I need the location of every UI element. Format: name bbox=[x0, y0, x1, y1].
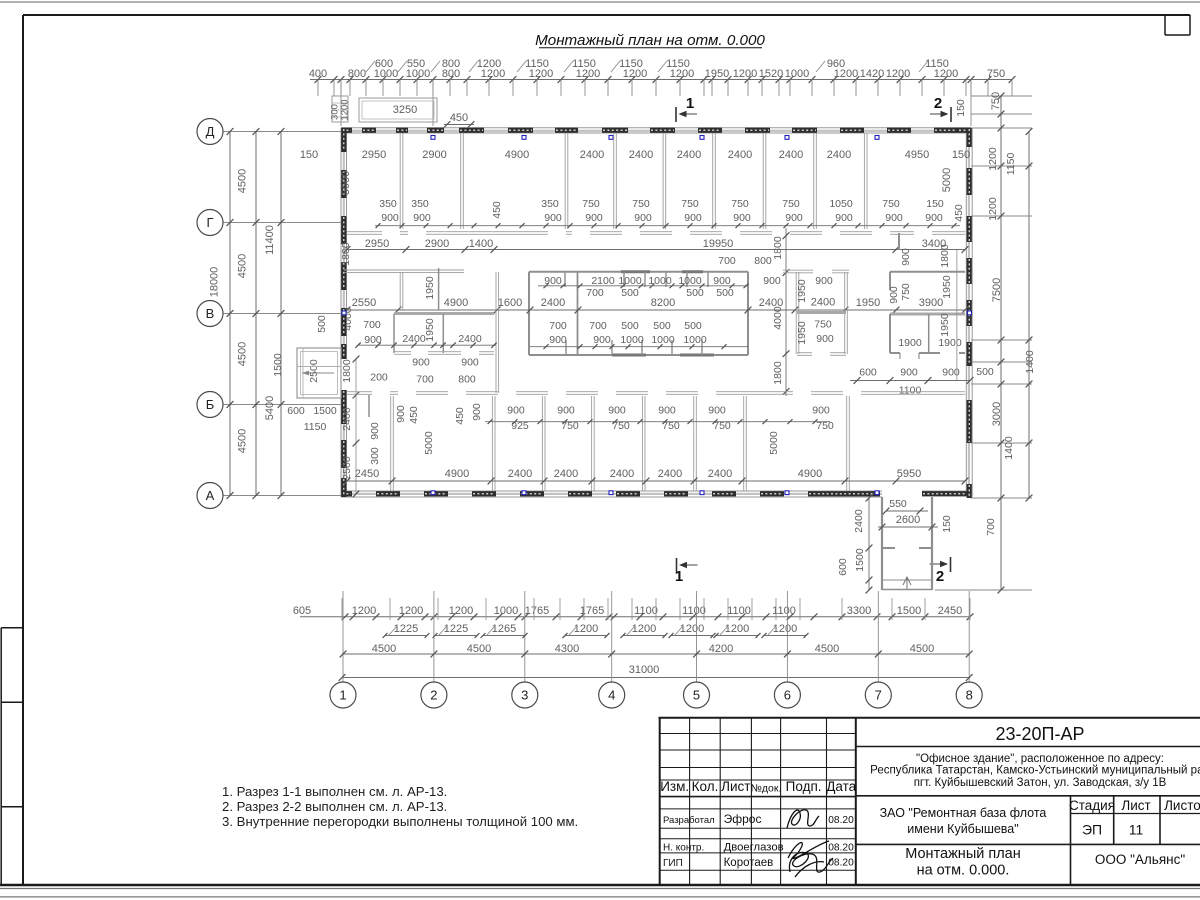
svg-text:150: 150 bbox=[941, 515, 953, 533]
svg-text:№док.: №док. bbox=[751, 783, 782, 795]
svg-text:1950: 1950 bbox=[941, 275, 953, 299]
svg-text:6: 6 bbox=[784, 688, 791, 703]
svg-text:2400: 2400 bbox=[658, 468, 682, 480]
svg-text:1800: 1800 bbox=[939, 244, 951, 268]
svg-text:4500: 4500 bbox=[236, 342, 248, 366]
svg-text:2: 2 bbox=[430, 688, 437, 703]
svg-text:5000: 5000 bbox=[423, 431, 435, 455]
svg-text:400: 400 bbox=[309, 68, 327, 80]
svg-text:4900: 4900 bbox=[444, 297, 468, 309]
svg-text:350: 350 bbox=[541, 198, 559, 210]
svg-text:2400: 2400 bbox=[629, 149, 653, 161]
svg-text:1200: 1200 bbox=[576, 68, 600, 80]
svg-text:1: 1 bbox=[675, 568, 683, 585]
svg-text:Дата: Дата bbox=[826, 779, 856, 794]
svg-text:800: 800 bbox=[754, 255, 772, 267]
svg-text:500: 500 bbox=[653, 320, 671, 332]
svg-text:5400: 5400 bbox=[264, 396, 276, 420]
svg-text:1150: 1150 bbox=[304, 421, 327, 433]
svg-text:600: 600 bbox=[837, 558, 849, 576]
svg-text:31000: 31000 bbox=[629, 664, 660, 676]
svg-text:4900: 4900 bbox=[505, 149, 529, 161]
svg-text:5000: 5000 bbox=[340, 171, 352, 195]
svg-text:7500: 7500 bbox=[991, 278, 1003, 302]
svg-text:2400: 2400 bbox=[508, 468, 532, 480]
svg-text:Лист: Лист bbox=[721, 779, 750, 794]
svg-text:1200: 1200 bbox=[449, 605, 473, 617]
svg-text:1265: 1265 bbox=[492, 623, 516, 635]
svg-text:1. Разрез 1-1 выполнен см. л.: 1. Разрез 1-1 выполнен см. л. АР-13. bbox=[222, 784, 447, 799]
svg-text:150: 150 bbox=[926, 198, 944, 210]
svg-text:750: 750 bbox=[900, 283, 912, 301]
svg-text:700: 700 bbox=[363, 319, 381, 331]
svg-text:1800: 1800 bbox=[340, 242, 352, 266]
svg-text:Эфрос: Эфрос bbox=[724, 812, 762, 826]
svg-text:пгт. Куйбышевский Затон, ул. З: пгт. Куйбышевский Затон, ул. Заводская, … bbox=[914, 777, 1167, 789]
svg-text:5: 5 bbox=[693, 688, 700, 703]
svg-text:1000: 1000 bbox=[683, 334, 707, 346]
svg-text:1100: 1100 bbox=[727, 605, 751, 617]
svg-text:ООО "Альянс": ООО "Альянс" bbox=[1095, 852, 1185, 867]
svg-text:900: 900 bbox=[413, 212, 431, 224]
svg-text:3000: 3000 bbox=[991, 402, 1003, 426]
svg-text:1765: 1765 bbox=[525, 605, 549, 617]
svg-text:900: 900 bbox=[557, 404, 575, 416]
svg-text:1950: 1950 bbox=[796, 321, 808, 345]
svg-text:4950: 4950 bbox=[905, 149, 929, 161]
svg-text:1400: 1400 bbox=[1024, 350, 1036, 374]
svg-text:900: 900 bbox=[544, 275, 562, 287]
svg-text:08.20: 08.20 bbox=[828, 843, 854, 854]
svg-text:900: 900 bbox=[885, 212, 903, 224]
svg-text:4900: 4900 bbox=[798, 468, 822, 480]
svg-text:750: 750 bbox=[882, 198, 900, 210]
svg-text:750: 750 bbox=[632, 198, 650, 210]
svg-text:900: 900 bbox=[395, 405, 407, 423]
svg-text:Подп.: Подп. bbox=[786, 779, 822, 794]
svg-text:900: 900 bbox=[608, 404, 626, 416]
svg-text:750: 750 bbox=[582, 198, 600, 210]
svg-text:450: 450 bbox=[953, 204, 965, 222]
svg-text:1200: 1200 bbox=[623, 68, 647, 80]
svg-text:4500: 4500 bbox=[467, 643, 491, 655]
svg-text:750: 750 bbox=[681, 198, 699, 210]
svg-text:4500: 4500 bbox=[236, 169, 248, 193]
svg-text:1200: 1200 bbox=[987, 197, 999, 221]
svg-text:1200: 1200 bbox=[725, 623, 749, 635]
svg-text:900: 900 bbox=[835, 212, 853, 224]
svg-text:500: 500 bbox=[684, 320, 702, 332]
svg-text:900: 900 bbox=[900, 367, 918, 379]
svg-text:"Офисное здание", расположенно: "Офисное здание", расположенное по адрес… bbox=[916, 753, 1164, 765]
svg-text:Республика Татарстан, Камско-У: Республика Татарстан, Камско-Устьинский … bbox=[870, 765, 1200, 777]
svg-text:1200: 1200 bbox=[340, 99, 351, 120]
svg-text:2400: 2400 bbox=[708, 468, 732, 480]
svg-text:700: 700 bbox=[985, 518, 997, 536]
svg-text:900: 900 bbox=[593, 334, 611, 346]
svg-text:В: В bbox=[206, 306, 215, 321]
svg-text:1800: 1800 bbox=[772, 361, 784, 385]
svg-text:1950: 1950 bbox=[424, 318, 436, 342]
svg-text:605: 605 bbox=[293, 605, 311, 617]
svg-text:1500: 1500 bbox=[272, 353, 284, 377]
svg-text:2400: 2400 bbox=[811, 297, 835, 309]
svg-text:4: 4 bbox=[608, 688, 615, 703]
svg-text:900: 900 bbox=[815, 275, 833, 287]
svg-text:4500: 4500 bbox=[236, 254, 248, 278]
svg-text:5000: 5000 bbox=[941, 168, 953, 192]
svg-text:2400: 2400 bbox=[402, 333, 426, 345]
svg-text:1000: 1000 bbox=[494, 605, 518, 617]
svg-text:1000: 1000 bbox=[620, 334, 644, 346]
svg-text:1950: 1950 bbox=[796, 279, 808, 303]
svg-text:500: 500 bbox=[621, 287, 639, 299]
svg-text:2400: 2400 bbox=[728, 149, 752, 161]
svg-text:700: 700 bbox=[416, 374, 434, 386]
svg-text:900: 900 bbox=[812, 404, 830, 416]
svg-text:Разработал: Разработал bbox=[663, 815, 715, 826]
svg-text:900: 900 bbox=[507, 404, 525, 416]
svg-text:2. Разрез 2-2 выполнен см. л.: 2. Разрез 2-2 выполнен см. л. АР-13. bbox=[222, 799, 447, 814]
svg-text:700: 700 bbox=[586, 287, 604, 299]
svg-text:ЗАО "Ремонтная база флота: ЗАО "Ремонтная база флота bbox=[880, 806, 1047, 820]
svg-text:900: 900 bbox=[713, 275, 731, 287]
svg-text:150: 150 bbox=[300, 149, 318, 161]
svg-text:900: 900 bbox=[369, 422, 381, 440]
svg-text:900: 900 bbox=[634, 212, 652, 224]
svg-text:2450: 2450 bbox=[938, 605, 962, 617]
svg-text:2900: 2900 bbox=[425, 238, 449, 250]
svg-text:Монтажный план на отм. 0.000: Монтажный план на отм. 0.000 bbox=[535, 32, 765, 49]
svg-text:2450: 2450 bbox=[355, 468, 379, 480]
svg-text:1200: 1200 bbox=[733, 68, 757, 80]
svg-text:Монтажный план: Монтажный план bbox=[905, 846, 1021, 862]
svg-text:1200: 1200 bbox=[773, 623, 797, 635]
svg-text:150: 150 bbox=[952, 149, 970, 161]
svg-text:Д: Д bbox=[206, 124, 215, 139]
svg-text:2950: 2950 bbox=[365, 238, 389, 250]
svg-text:3250: 3250 bbox=[393, 104, 417, 116]
svg-text:Изм.: Изм. bbox=[660, 779, 689, 794]
svg-text:2400: 2400 bbox=[610, 468, 634, 480]
svg-text:1200: 1200 bbox=[886, 68, 910, 80]
svg-text:2400: 2400 bbox=[554, 468, 578, 480]
svg-text:1: 1 bbox=[339, 688, 346, 703]
svg-text:Г: Г bbox=[206, 215, 213, 230]
svg-text:900: 900 bbox=[925, 212, 943, 224]
svg-text:2100: 2100 bbox=[591, 275, 615, 287]
svg-text:1800: 1800 bbox=[772, 236, 784, 260]
svg-text:500: 500 bbox=[621, 320, 639, 332]
svg-text:2400: 2400 bbox=[827, 149, 851, 161]
svg-text:4500: 4500 bbox=[372, 643, 396, 655]
svg-text:2: 2 bbox=[936, 568, 944, 585]
svg-text:Лист: Лист bbox=[1121, 798, 1150, 813]
svg-text:1600: 1600 bbox=[498, 297, 522, 309]
svg-text:А: А bbox=[206, 488, 215, 503]
svg-text:900: 900 bbox=[412, 357, 430, 369]
svg-text:900: 900 bbox=[816, 333, 834, 345]
svg-text:350: 350 bbox=[411, 198, 429, 210]
svg-text:1950: 1950 bbox=[705, 68, 729, 80]
svg-text:900: 900 bbox=[544, 212, 562, 224]
svg-text:2400: 2400 bbox=[541, 297, 565, 309]
svg-text:1500: 1500 bbox=[313, 405, 337, 417]
svg-text:1950: 1950 bbox=[424, 276, 436, 300]
svg-text:1000: 1000 bbox=[374, 68, 398, 80]
svg-text:1225: 1225 bbox=[444, 623, 468, 635]
svg-text:1950: 1950 bbox=[856, 297, 880, 309]
svg-text:750: 750 bbox=[990, 92, 1002, 110]
svg-text:23-20П-АР: 23-20П-АР bbox=[996, 724, 1085, 744]
svg-text:5000: 5000 bbox=[768, 431, 780, 455]
svg-text:700: 700 bbox=[589, 320, 607, 332]
svg-text:4300: 4300 bbox=[555, 643, 579, 655]
svg-text:11400: 11400 bbox=[264, 225, 276, 255]
svg-text:1500: 1500 bbox=[854, 548, 866, 572]
svg-text:3. Внутренние перегородки выпо: 3. Внутренние перегородки выполнены толщ… bbox=[222, 814, 578, 829]
svg-text:200: 200 bbox=[370, 372, 388, 384]
svg-text:800: 800 bbox=[458, 374, 476, 386]
svg-text:750: 750 bbox=[782, 198, 800, 210]
svg-text:900: 900 bbox=[461, 357, 479, 369]
svg-text:2400: 2400 bbox=[341, 407, 353, 431]
svg-text:08.20: 08.20 bbox=[828, 815, 854, 826]
svg-text:900: 900 bbox=[888, 286, 900, 304]
svg-text:2550: 2550 bbox=[352, 297, 376, 309]
svg-text:1000: 1000 bbox=[618, 275, 642, 287]
svg-text:300: 300 bbox=[369, 447, 381, 465]
svg-text:8: 8 bbox=[966, 688, 973, 703]
svg-text:1200: 1200 bbox=[574, 623, 598, 635]
svg-text:1050: 1050 bbox=[829, 198, 853, 210]
svg-text:1150: 1150 bbox=[1005, 153, 1017, 176]
svg-text:900: 900 bbox=[900, 248, 912, 266]
svg-text:Кол.: Кол. bbox=[692, 779, 719, 794]
svg-text:Двоеглазов: Двоеглазов bbox=[724, 842, 784, 854]
svg-text:900: 900 bbox=[708, 404, 726, 416]
svg-text:1000: 1000 bbox=[785, 68, 809, 80]
svg-text:3300: 3300 bbox=[847, 605, 871, 617]
svg-text:4500: 4500 bbox=[815, 643, 839, 655]
svg-text:1: 1 bbox=[686, 95, 694, 112]
svg-text:2500: 2500 bbox=[308, 359, 320, 383]
svg-text:700: 700 bbox=[718, 255, 736, 267]
svg-text:900: 900 bbox=[658, 404, 676, 416]
svg-text:500: 500 bbox=[716, 287, 734, 299]
svg-text:150: 150 bbox=[955, 99, 967, 117]
svg-text:1200: 1200 bbox=[481, 68, 505, 80]
svg-text:5950: 5950 bbox=[897, 468, 921, 480]
svg-text:500: 500 bbox=[316, 315, 328, 333]
svg-text:1225: 1225 bbox=[394, 623, 418, 635]
svg-text:500: 500 bbox=[976, 366, 994, 378]
svg-text:600: 600 bbox=[859, 367, 877, 379]
svg-text:1950: 1950 bbox=[939, 313, 951, 337]
svg-text:на отм. 0.000.: на отм. 0.000. bbox=[917, 863, 1010, 879]
svg-text:18000: 18000 bbox=[209, 267, 221, 298]
svg-text:1200: 1200 bbox=[632, 623, 656, 635]
svg-text:4500: 4500 bbox=[236, 429, 248, 453]
svg-text:450: 450 bbox=[491, 201, 503, 219]
svg-text:2600: 2600 bbox=[896, 514, 920, 526]
svg-text:900: 900 bbox=[585, 212, 603, 224]
svg-text:900: 900 bbox=[381, 212, 399, 224]
svg-text:7: 7 bbox=[875, 688, 882, 703]
svg-text:2: 2 bbox=[934, 95, 942, 112]
svg-text:1400: 1400 bbox=[469, 238, 493, 250]
svg-text:500: 500 bbox=[686, 287, 704, 299]
svg-text:Стадия: Стадия bbox=[1069, 798, 1115, 813]
svg-text:ЭП: ЭП bbox=[1082, 822, 1102, 838]
svg-text:700: 700 bbox=[549, 320, 567, 332]
svg-text:2400: 2400 bbox=[580, 149, 604, 161]
svg-text:2400: 2400 bbox=[677, 149, 701, 161]
svg-text:4200: 4200 bbox=[709, 643, 733, 655]
svg-text:1000: 1000 bbox=[651, 334, 675, 346]
svg-text:1800: 1800 bbox=[341, 359, 353, 383]
svg-text:3900: 3900 bbox=[919, 297, 943, 309]
svg-text:2950: 2950 bbox=[362, 149, 386, 161]
svg-text:900: 900 bbox=[733, 212, 751, 224]
svg-text:900: 900 bbox=[684, 212, 702, 224]
svg-text:600: 600 bbox=[287, 405, 305, 417]
svg-text:имени Куйбышева": имени Куйбышева" bbox=[907, 822, 1018, 836]
svg-text:2500: 2500 bbox=[341, 456, 353, 480]
svg-text:350: 350 bbox=[379, 198, 397, 210]
svg-text:1900: 1900 bbox=[898, 337, 922, 349]
svg-text:4000: 4000 bbox=[772, 306, 784, 330]
svg-text:450: 450 bbox=[454, 407, 466, 425]
svg-text:2400: 2400 bbox=[458, 333, 482, 345]
svg-text:Б: Б bbox=[206, 397, 215, 412]
svg-text:ГИП: ГИП bbox=[663, 858, 683, 869]
svg-text:750: 750 bbox=[814, 319, 832, 331]
svg-text:19950: 19950 bbox=[703, 238, 734, 250]
svg-text:1200: 1200 bbox=[834, 68, 858, 80]
svg-text:1000: 1000 bbox=[678, 275, 702, 287]
svg-text:11: 11 bbox=[1129, 822, 1144, 838]
svg-text:2900: 2900 bbox=[422, 149, 446, 161]
svg-text:Н. контр.: Н. контр. bbox=[663, 843, 704, 854]
svg-text:2400: 2400 bbox=[779, 149, 803, 161]
svg-text:1000: 1000 bbox=[648, 275, 672, 287]
svg-text:1200: 1200 bbox=[987, 147, 999, 171]
svg-text:900: 900 bbox=[471, 403, 483, 421]
svg-text:450: 450 bbox=[450, 112, 468, 124]
svg-text:450: 450 bbox=[408, 406, 420, 424]
svg-text:1400: 1400 bbox=[1003, 436, 1015, 460]
svg-text:3: 3 bbox=[521, 688, 528, 703]
svg-text:4900: 4900 bbox=[445, 468, 469, 480]
svg-text:550: 550 bbox=[889, 498, 907, 510]
svg-text:2400: 2400 bbox=[853, 509, 865, 533]
svg-text:Листов: Листов bbox=[1164, 798, 1200, 813]
svg-text:1420: 1420 bbox=[860, 68, 884, 80]
svg-text:Коротаев: Коротаев bbox=[724, 857, 774, 869]
svg-text:8200: 8200 bbox=[651, 297, 675, 309]
svg-text:750: 750 bbox=[731, 198, 749, 210]
svg-text:1200: 1200 bbox=[529, 68, 553, 80]
svg-text:900: 900 bbox=[785, 212, 803, 224]
svg-text:900: 900 bbox=[763, 275, 781, 287]
svg-text:1100: 1100 bbox=[634, 605, 658, 617]
svg-text:4500: 4500 bbox=[910, 643, 934, 655]
svg-text:1500: 1500 bbox=[897, 605, 921, 617]
svg-text:900: 900 bbox=[549, 334, 567, 346]
svg-text:1900: 1900 bbox=[938, 337, 962, 349]
svg-text:1200: 1200 bbox=[680, 623, 704, 635]
